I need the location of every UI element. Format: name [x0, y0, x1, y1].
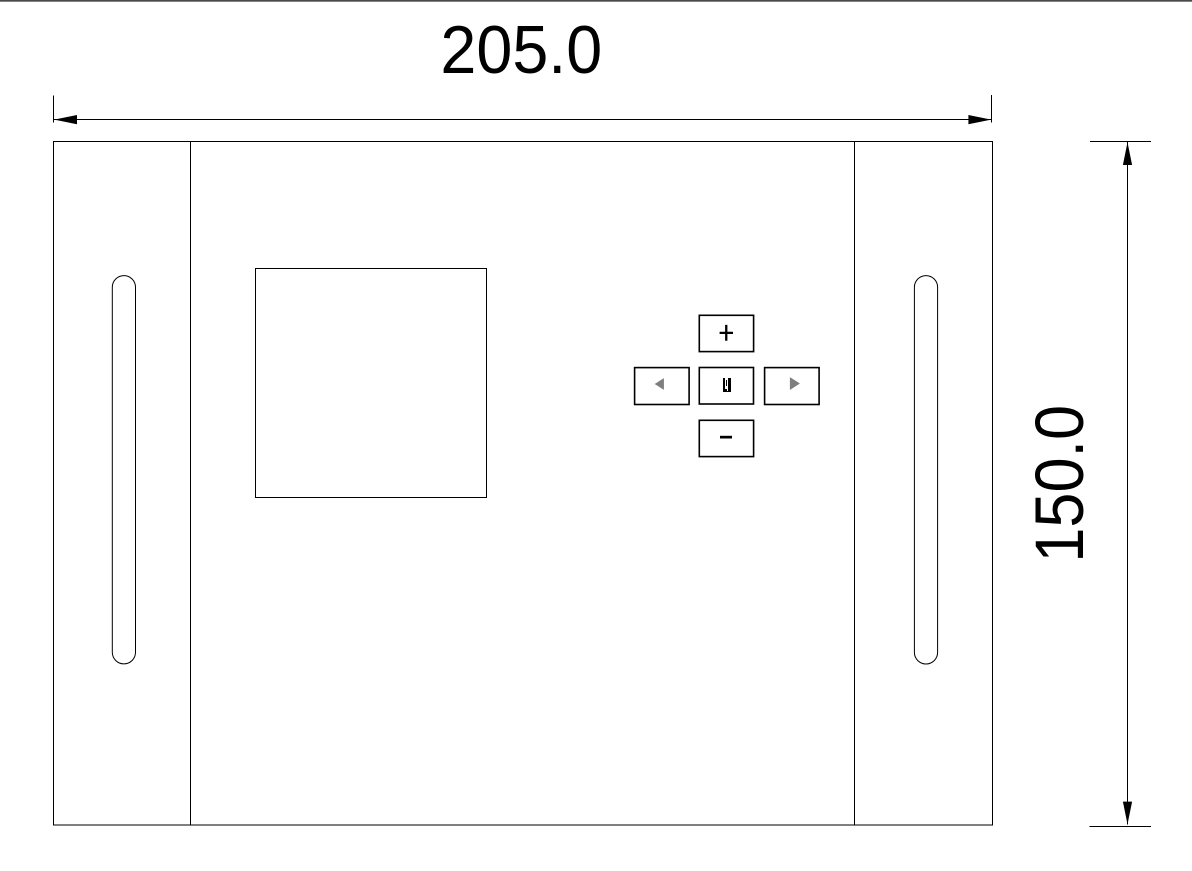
- svg-text:205.0: 205.0: [440, 12, 602, 88]
- svg-text:150.0: 150.0: [1020, 405, 1097, 563]
